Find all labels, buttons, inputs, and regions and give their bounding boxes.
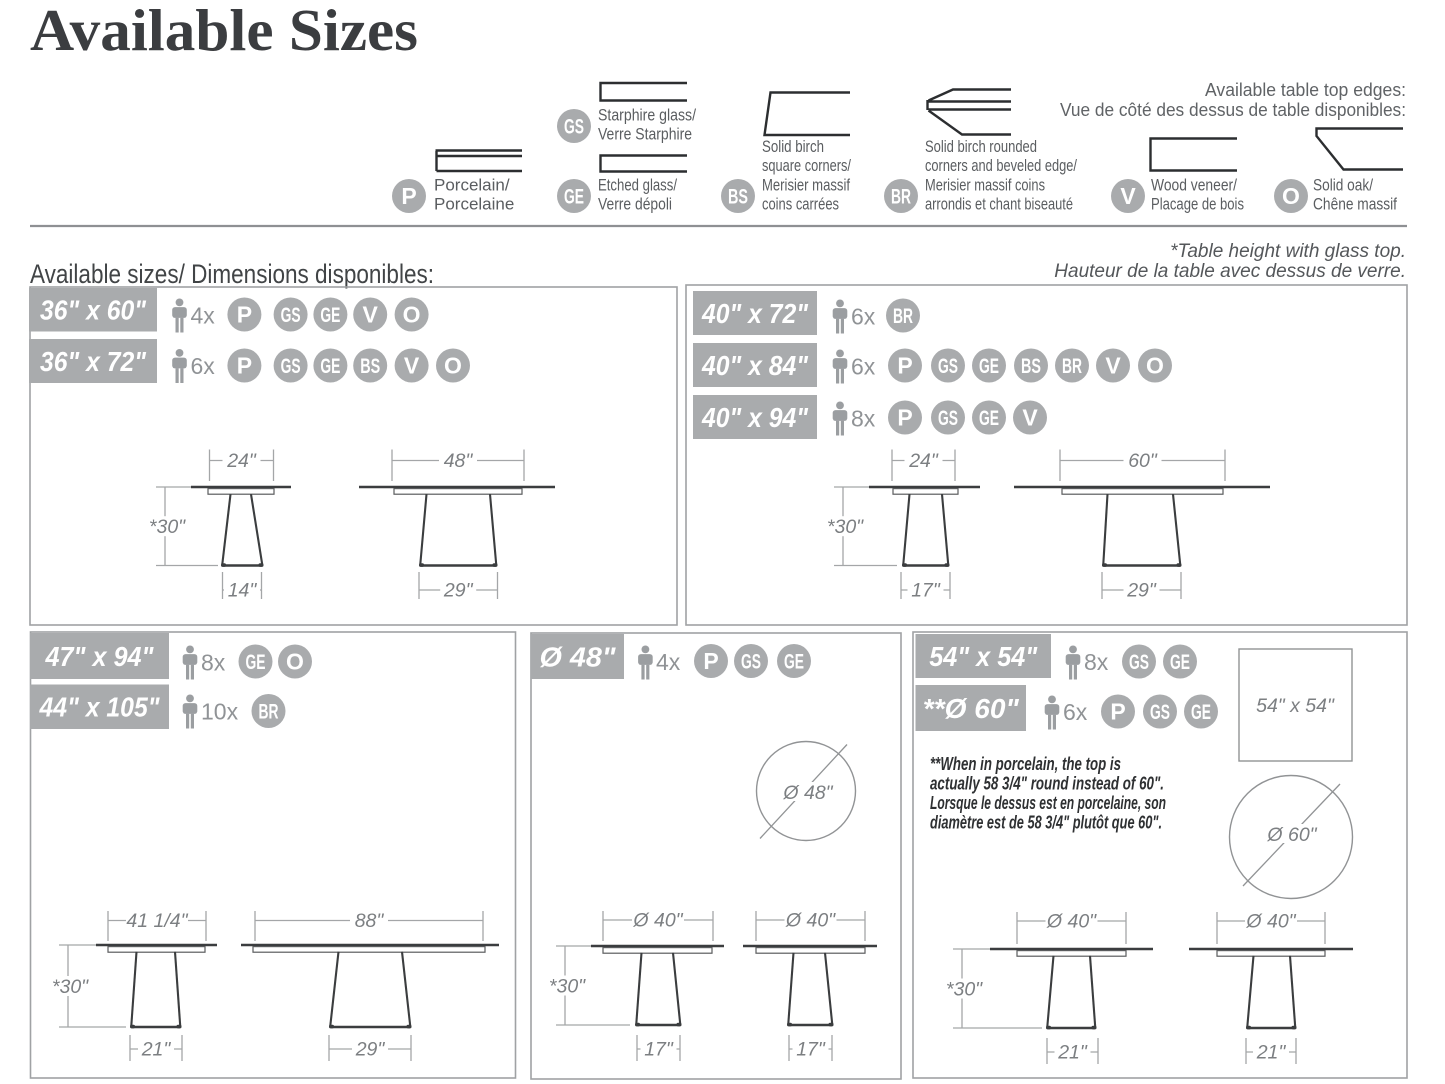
svg-text:Ø 40": Ø 40"	[1245, 911, 1296, 933]
svg-text:54" x 54": 54" x 54"	[929, 641, 1038, 672]
svg-text:V: V	[404, 353, 420, 379]
svg-text:Ø 40": Ø 40"	[632, 910, 683, 932]
svg-text:Solid birch: Solid birch	[762, 137, 824, 156]
svg-text:GS: GS	[938, 355, 958, 378]
svg-text:24": 24"	[226, 450, 257, 472]
svg-text:8x: 8x	[851, 405, 876, 431]
svg-text:88": 88"	[355, 910, 385, 932]
svg-text:Placage de bois: Placage de bois	[1151, 195, 1244, 214]
svg-text:GE: GE	[246, 651, 266, 674]
svg-text:29": 29"	[355, 1039, 386, 1061]
svg-text:actually 58 3/4" round instead: actually 58 3/4" round instead of 60".	[930, 773, 1164, 794]
svg-text:BS: BS	[360, 355, 380, 378]
svg-text:GS: GS	[281, 355, 301, 378]
svg-text:29": 29"	[443, 580, 474, 602]
svg-text:Merisier massif coins: Merisier massif coins	[925, 175, 1045, 194]
svg-text:40" x 72": 40" x 72"	[701, 298, 809, 329]
svg-text:V: V	[1105, 353, 1121, 379]
svg-text:Vue de côté des dessus de tabl: Vue de côté des dessus de table disponib…	[1060, 100, 1406, 120]
svg-text:P: P	[897, 353, 912, 379]
svg-text:coins carrées: coins carrées	[762, 195, 839, 214]
svg-text:GS: GS	[281, 304, 301, 327]
svg-text:17": 17"	[911, 580, 941, 602]
svg-text:P: P	[237, 353, 252, 379]
svg-text:*30": *30"	[827, 516, 864, 538]
svg-text:O: O	[1282, 183, 1300, 209]
svg-text:41 1/4": 41 1/4"	[126, 910, 188, 932]
svg-text:17": 17"	[644, 1039, 674, 1061]
svg-text:6x: 6x	[191, 353, 216, 379]
svg-text:P: P	[1110, 699, 1125, 725]
svg-text:10x: 10x	[201, 698, 239, 724]
svg-text:O: O	[1146, 353, 1164, 379]
svg-text:P: P	[703, 648, 718, 674]
svg-text:29": 29"	[1126, 580, 1157, 602]
svg-text:V: V	[1120, 183, 1136, 209]
svg-text:Chêne massif: Chêne massif	[1313, 195, 1397, 214]
svg-text:GE: GE	[320, 304, 340, 327]
svg-text:BR: BR	[891, 185, 911, 208]
svg-text:arrondis et chant biseauté: arrondis et chant biseauté	[925, 195, 1073, 214]
svg-text:21": 21"	[1256, 1042, 1287, 1064]
svg-text:*Table height with glass top.: *Table height with glass top.	[1170, 241, 1406, 262]
svg-text:6x: 6x	[851, 303, 876, 329]
svg-text:GE: GE	[1191, 701, 1211, 724]
svg-text:BR: BR	[1062, 355, 1082, 378]
svg-text:*30": *30"	[52, 976, 89, 998]
svg-text:GS: GS	[564, 115, 584, 138]
svg-text:**Ø 60": **Ø 60"	[923, 693, 1020, 724]
svg-text:GE: GE	[320, 355, 340, 378]
svg-text:diamètre est de 58 3/4" plutôt: diamètre est de 58 3/4" plutôt que 60".	[930, 812, 1162, 833]
svg-text:GE: GE	[784, 650, 804, 673]
svg-text:40" x 84": 40" x 84"	[701, 350, 809, 381]
svg-text:GE: GE	[979, 355, 999, 378]
svg-text:O: O	[444, 353, 462, 379]
svg-text:Available table top edges:: Available table top edges:	[1205, 80, 1406, 100]
svg-text:48": 48"	[444, 450, 474, 472]
svg-text:Verre dépoli: Verre dépoli	[598, 195, 672, 214]
svg-text:17": 17"	[796, 1039, 826, 1061]
svg-text:Porcelaine: Porcelaine	[434, 195, 514, 214]
svg-text:GS: GS	[1150, 701, 1170, 724]
svg-text:P: P	[401, 183, 416, 209]
svg-text:40" x 94": 40" x 94"	[701, 402, 809, 433]
svg-text:GE: GE	[564, 185, 584, 208]
svg-text:P: P	[237, 302, 252, 328]
svg-text:BR: BR	[893, 305, 913, 328]
svg-text:54" x 54": 54" x 54"	[1256, 695, 1335, 717]
svg-text:Ø 40": Ø 40"	[1046, 911, 1097, 933]
svg-text:4x: 4x	[191, 302, 216, 328]
svg-text:Etched glass/: Etched glass/	[598, 176, 677, 195]
svg-text:square corners/: square corners/	[762, 156, 851, 175]
svg-text:44" x 105": 44" x 105"	[39, 692, 161, 723]
svg-text:47" x 94": 47" x 94"	[45, 641, 155, 672]
svg-text:Ø 40": Ø 40"	[785, 910, 836, 932]
svg-text:corners and beveled edge/: corners and beveled edge/	[925, 156, 1077, 175]
svg-text:8x: 8x	[201, 649, 226, 675]
svg-text:Verre Starphire: Verre Starphire	[598, 125, 692, 144]
svg-text:Wood veneer/: Wood veneer/	[1151, 176, 1237, 195]
svg-text:Ø 48": Ø 48"	[782, 782, 833, 804]
svg-text:24": 24"	[908, 450, 939, 472]
svg-text:*30": *30"	[549, 976, 586, 998]
svg-text:Available Sizes: Available Sizes	[30, 0, 418, 63]
svg-text:Hauteur de la table avec dessu: Hauteur de la table avec dessus de verre…	[1054, 261, 1406, 282]
svg-text:4x: 4x	[656, 649, 681, 675]
svg-text:Porcelain/: Porcelain/	[434, 176, 510, 195]
svg-text:Solid oak/: Solid oak/	[1313, 176, 1373, 195]
svg-text:P: P	[897, 405, 912, 431]
svg-text:8x: 8x	[1084, 649, 1109, 675]
svg-text:36" x 60": 36" x 60"	[40, 295, 147, 326]
svg-text:GE: GE	[1170, 651, 1190, 674]
svg-text:V: V	[363, 302, 379, 328]
svg-text:*30": *30"	[149, 516, 186, 538]
svg-text:**When in porcelain, the top i: **When in porcelain, the top is	[930, 753, 1121, 774]
svg-text:GS: GS	[938, 407, 958, 430]
svg-text:Solid birch rounded: Solid birch rounded	[925, 137, 1037, 156]
svg-text:60": 60"	[1128, 450, 1158, 472]
svg-text:BR: BR	[259, 700, 279, 723]
svg-text:Available sizes/ Dimensions di: Available sizes/ Dimensions disponibles:	[30, 259, 434, 289]
svg-text:Ø 48": Ø 48"	[540, 641, 617, 672]
svg-text:BS: BS	[728, 185, 748, 208]
svg-text:6x: 6x	[851, 353, 876, 379]
svg-text:Starphire glass/: Starphire glass/	[598, 106, 696, 125]
svg-text:O: O	[286, 649, 304, 675]
svg-text:6x: 6x	[1063, 699, 1088, 725]
svg-text:21": 21"	[1057, 1042, 1088, 1064]
svg-text:Merisier massif: Merisier massif	[762, 175, 850, 194]
svg-text:GS: GS	[1129, 651, 1149, 674]
svg-text:21": 21"	[141, 1039, 172, 1061]
svg-text:*30": *30"	[946, 979, 983, 1001]
svg-text:GS: GS	[741, 650, 761, 673]
svg-text:BS: BS	[1021, 355, 1041, 378]
svg-text:36" x 72": 36" x 72"	[40, 346, 147, 377]
svg-text:Ø 60": Ø 60"	[1266, 824, 1317, 846]
svg-text:O: O	[403, 302, 421, 328]
svg-text:14": 14"	[228, 580, 258, 602]
svg-text:Lorsque le dessus est en porce: Lorsque le dessus est en porcelaine, son	[930, 792, 1166, 813]
svg-text:GE: GE	[979, 407, 999, 430]
svg-text:V: V	[1022, 405, 1038, 431]
